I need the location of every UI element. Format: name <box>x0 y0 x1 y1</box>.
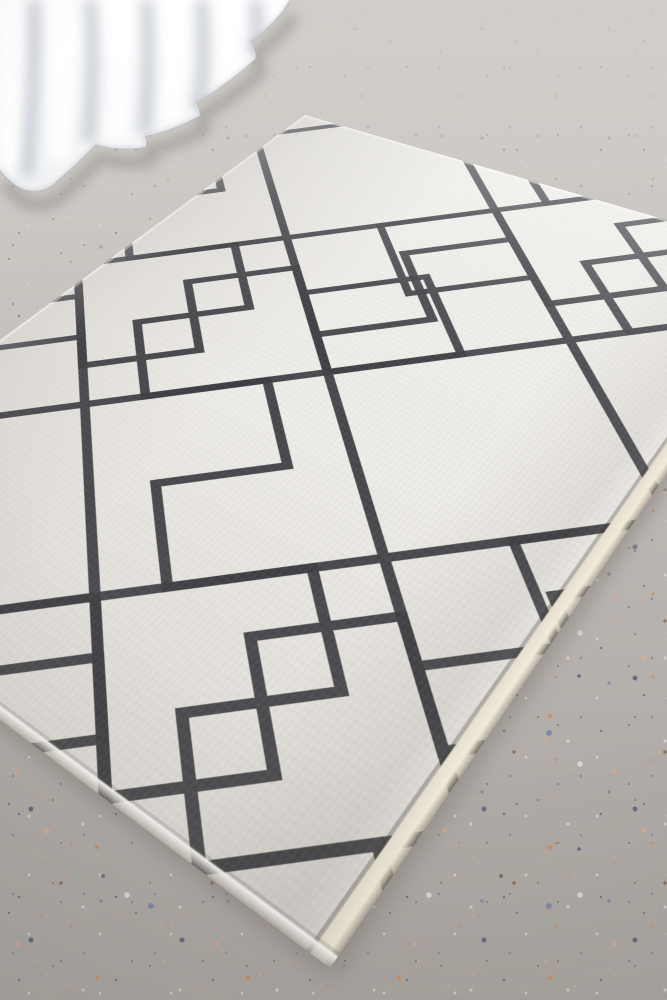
scene <box>0 0 667 1000</box>
